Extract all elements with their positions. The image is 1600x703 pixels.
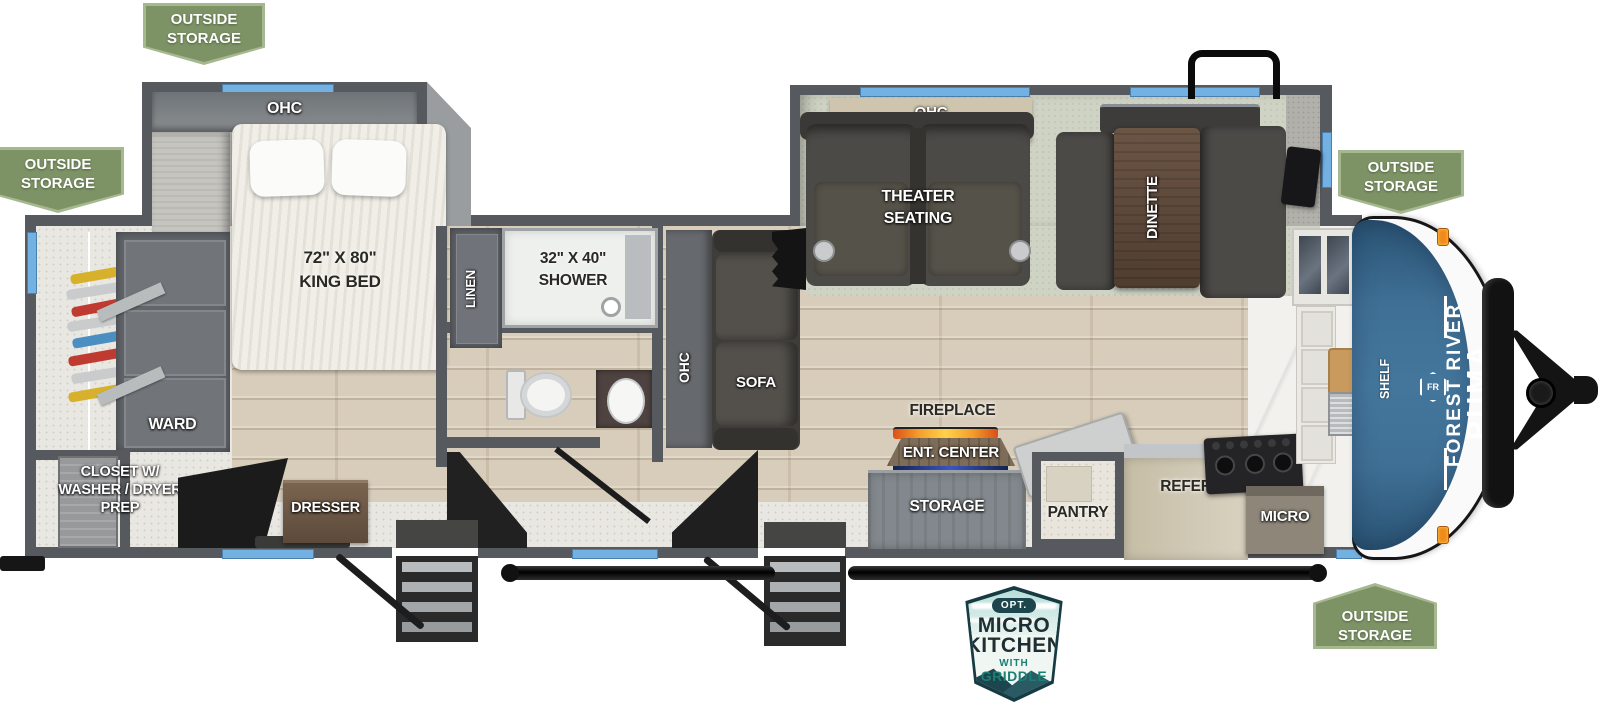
rear-bumper (0, 556, 45, 571)
awning-tube-right (848, 566, 1325, 580)
dinette-bench-left (1056, 132, 1116, 290)
kitchen-ohc-glass (1292, 228, 1358, 306)
hitch-coupler (1574, 376, 1598, 404)
fireplace-flame (893, 427, 998, 439)
propane-tank-cover (1482, 278, 1514, 508)
badge-line: OUTSIDE (0, 155, 124, 174)
shower-name-label: SHOWER (498, 272, 648, 290)
door2-landing (764, 522, 846, 548)
king-bed-size-label: 72" X 80" (240, 248, 440, 268)
ent-center-label: ENT. CENTER (878, 444, 1024, 461)
dinette-bench-right (1200, 126, 1286, 298)
bottom-window-1 (222, 549, 314, 559)
pillow-right (331, 139, 407, 198)
grab-handle (1188, 50, 1280, 99)
shelf-label: SHELF (1378, 350, 1402, 408)
folded-item (772, 228, 806, 290)
tongue-jack (1526, 378, 1556, 408)
bath-vanity (596, 370, 652, 428)
ward-label: WARD (110, 416, 235, 434)
pillow-left (249, 139, 325, 198)
dresser-label: DRESSER (278, 500, 373, 517)
theater-label-1: THEATER (820, 188, 1016, 206)
theater-label-2: SEATING (820, 210, 1016, 228)
storage-label: STORAGE (868, 498, 1026, 516)
pantry-label: PANTRY (1032, 504, 1124, 522)
bath-bottom-wall (447, 437, 600, 448)
sofa-ohc-label: OHC (676, 328, 700, 408)
closet-label-3: PREP (40, 500, 200, 517)
right-wall-window (1322, 132, 1332, 188)
king-bed-name-label: KING BED (240, 272, 440, 292)
bottom-window-2 (572, 549, 658, 559)
theater-cupholder-right (1009, 240, 1031, 262)
living-slide-window-1 (860, 87, 1030, 97)
door1-landing (396, 520, 478, 548)
entry-steps-1 (396, 556, 478, 642)
sofa-label: SOFA (712, 374, 800, 391)
living-slide-left-wall (790, 85, 800, 226)
opt-tag-row: OPT. (954, 595, 1074, 613)
opt-tag: OPT. (992, 598, 1036, 613)
badge-line: STORAGE (143, 29, 265, 48)
fireplace-label: FIREPLACE (880, 402, 1025, 420)
badge-sub-2: GRIDDLE (954, 668, 1074, 684)
shower-size-label: 32" X 40" (498, 250, 648, 268)
entry-steps-2 (764, 556, 846, 646)
pantry-walls (1032, 452, 1124, 548)
theater-cupholder-left (813, 240, 835, 262)
bedroom-bath-wall (436, 226, 447, 467)
marker-light-top (1437, 228, 1449, 246)
badge-line: STORAGE (1313, 626, 1437, 645)
toilet-bowl (520, 372, 572, 418)
badge-line: OUTSIDE (1338, 158, 1464, 177)
bedroom-ohc-label: OHC (152, 100, 417, 118)
dinette-label: DINETTE (1144, 158, 1170, 258)
badge-line: OUTSIDE (143, 10, 265, 29)
closet-label-1: CLOSET W/ (40, 464, 200, 481)
outside-storage-badge-right: OUTSIDE STORAGE (1338, 150, 1464, 214)
outside-storage-badge-left: OUTSIDE STORAGE (0, 147, 124, 213)
bedroom-slide-left-wall (142, 82, 152, 226)
linen-label: LINEN (464, 246, 488, 332)
marker-light-bottom (1437, 526, 1449, 544)
living-tv (1281, 146, 1322, 208)
rear-wall-window (27, 232, 37, 294)
micro-kitchen-badge: OPT. MICRO KITCHEN WITH GRIDDLE (950, 586, 1078, 702)
micro-label: MICRO (1246, 508, 1324, 525)
awning-tube-left (505, 566, 775, 580)
badge-line: STORAGE (0, 174, 124, 193)
badge-line: OUTSIDE (1313, 607, 1437, 626)
badge-line: STORAGE (1338, 177, 1464, 196)
outside-storage-badge-top: OUTSIDE STORAGE (143, 3, 265, 65)
outside-storage-badge-bottom: OUTSIDE STORAGE (1313, 583, 1437, 649)
closet-label-2: WASHER / DRYER (40, 482, 200, 499)
floorplan-canvas: OHC 72" X 80" KING BED WARD CLOSET W/ WA… (0, 0, 1600, 703)
